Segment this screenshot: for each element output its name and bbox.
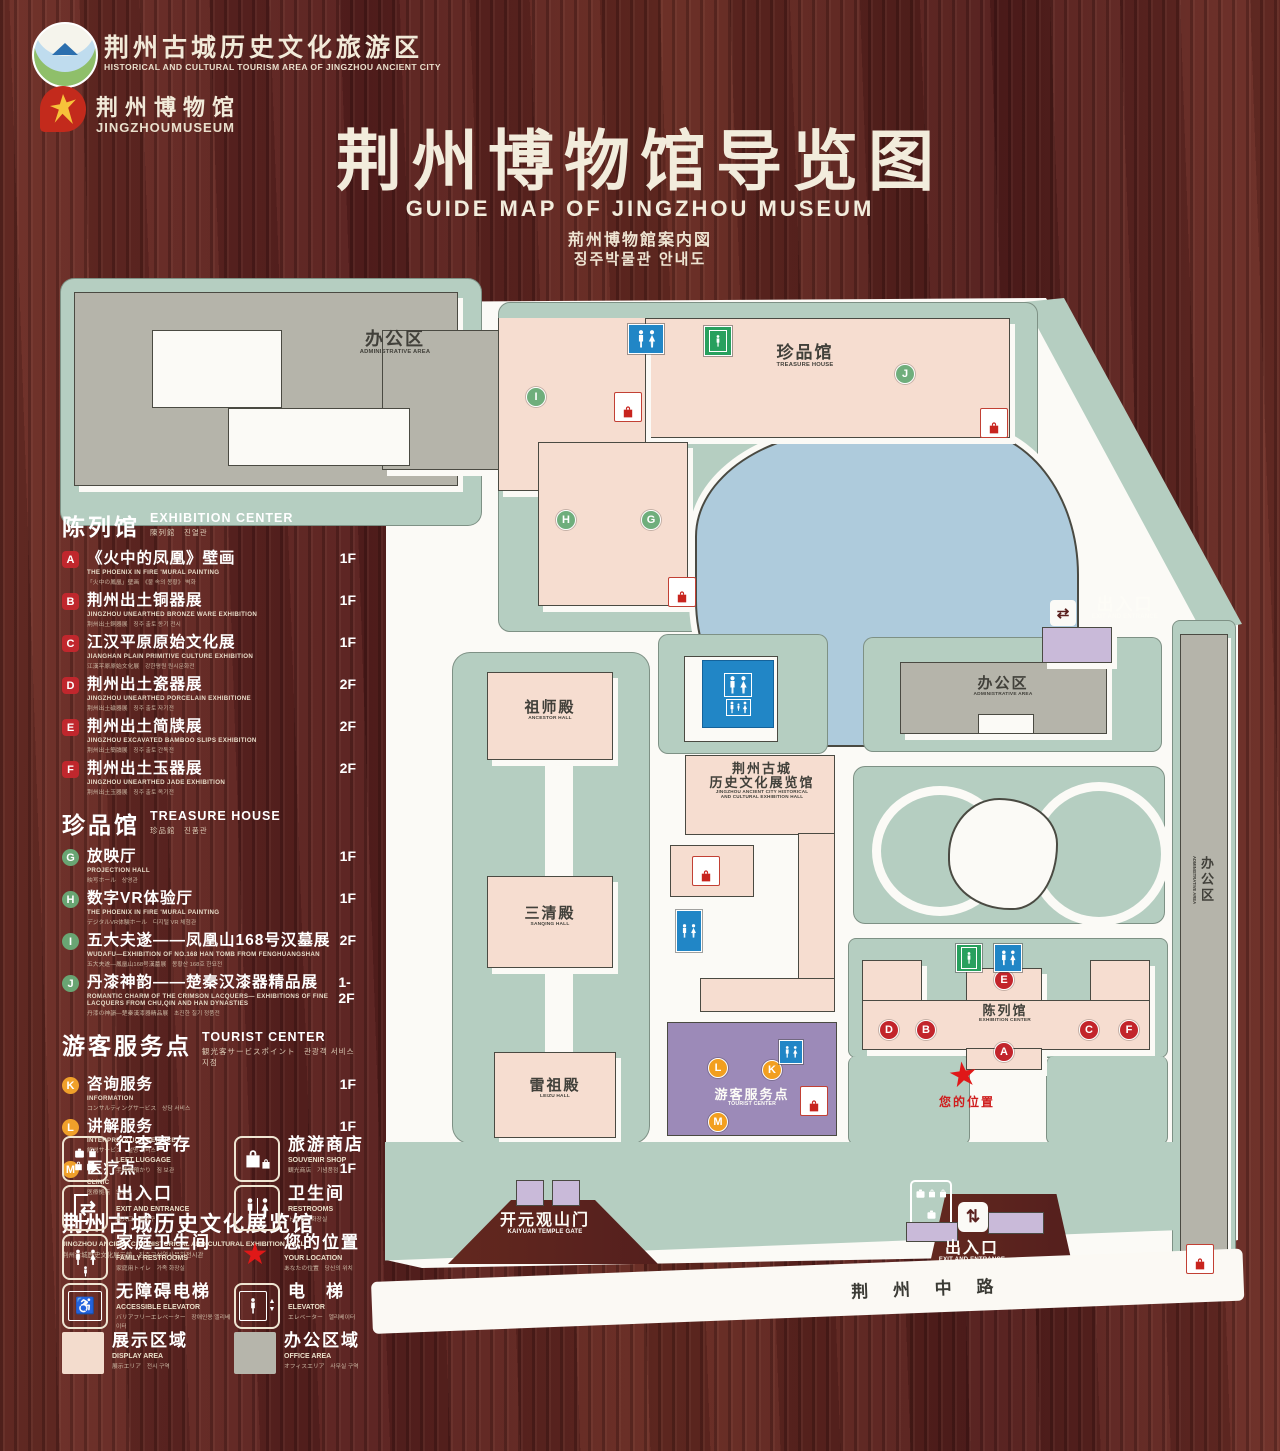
star-icon: ★ <box>234 1234 276 1276</box>
key-item-K: K 咨询服务 INFORMATION コンサルティングサービス 상담 서비스 1… <box>62 1076 356 1112</box>
legend-item-office-area: 办公区域 OFFICE AREA オフィスエリア 사무실 구역 <box>234 1332 412 1381</box>
key-item-cn: 数字VR体验厅 <box>87 890 193 907</box>
key-item-sub: 五大夫遂—鳳凰山168号漢墓展 봉황산 168호 한묘전 <box>87 959 336 968</box>
map-marker-J: J <box>895 364 915 384</box>
legend-sub: 手荷物預かり 짐 보관 <box>116 1165 192 1174</box>
building-exhibition-center-ne <box>1090 960 1150 1004</box>
legend-en: RESTROOMS <box>288 1206 345 1213</box>
key-item-J: J 丹漆神韵——楚秦汉漆器精品展 ROMANTIC CHARM OF THE C… <box>62 974 356 1017</box>
key-item-en: JINGZHOU EXCAVATED BAMBOO SLIPS EXHIBITI… <box>87 737 336 744</box>
label-tourist-center: 游客服务点 TOURIST CENTER <box>714 1088 789 1108</box>
key-item-cn: 荆州出土简牍展 <box>87 718 203 735</box>
map-marker-F: F <box>1119 1020 1139 1040</box>
map-marker-C: C <box>1079 1020 1099 1040</box>
legend-en: ELEVATOR <box>288 1304 355 1311</box>
key-badge: E <box>62 719 79 736</box>
key-badge: H <box>62 891 79 908</box>
elevator-icon <box>956 944 982 972</box>
legend-en: EXIT AND ENTRANCE <box>116 1206 189 1213</box>
legend-cn: 展示区域 <box>112 1331 188 1350</box>
key-item-sub: 映写ホール 상영관 <box>87 875 336 884</box>
key-item-en: INFORMATION <box>87 1095 336 1102</box>
map-marker-D: D <box>879 1020 899 1040</box>
label-sanqing-hall: 三清殿 SANQING HALL <box>524 906 575 927</box>
exit-entrance-icon: ⇄ <box>1050 600 1076 626</box>
key-item-cn: 荆州出土瓷器展 <box>87 676 203 693</box>
legend-item-restrooms: 卫生间 RESTROOMS トイレ 화장실 <box>234 1185 412 1234</box>
key-item-sub: 江漢平原原始文化展 강한평원 원시문화전 <box>87 661 336 670</box>
display-area-swatch <box>62 1332 104 1374</box>
key-item-floor: 1F <box>336 890 356 906</box>
key-badge: L <box>62 1119 79 1136</box>
legend-cn: 办公区域 <box>284 1331 360 1350</box>
section-title-sub: 観光客サービスポイント 관광객 서비스 지점 <box>202 1046 356 1068</box>
elevator-icon <box>704 326 732 356</box>
map-marker-I: I <box>526 387 546 407</box>
map-marker-E: E <box>994 970 1014 990</box>
label-admin-nw: 办公区 ADMINISTRATIVE AREA <box>360 330 430 356</box>
legend-sub: エレベーター 엘리베이터 <box>288 1312 355 1321</box>
gate-pillar <box>552 1180 580 1206</box>
label-exhibition-hall: 荆州古城 历史文化展览馆 JINGZHOU ANCIENT CITY HISTO… <box>682 762 842 800</box>
key-item-en: THE PHOENIX IN FIRE 'MURAL PAINTING <box>87 909 336 916</box>
key-item-H: H 数字VR体验厅 THE PHOENIX IN FIRE 'MURAL PAI… <box>62 890 356 926</box>
souvenir-shop-icon <box>692 856 720 886</box>
key-item-floor: 2F <box>336 676 356 692</box>
label-road: 荆 州 中 路 <box>851 1271 1004 1302</box>
key-item-I: I 五大夫遂——凤凰山168号汉墓展 WUDAFU—EXHIBITION OF … <box>62 932 356 968</box>
key-item-D: D 荆州出土瓷器展 JINGZHOU UNEARTHED PORCELAIN E… <box>62 676 356 712</box>
key-item-cn: 丹漆神韵——楚秦汉漆器精品展 <box>87 974 318 991</box>
key-item-floor: 1F <box>336 634 356 650</box>
legend-item-family-restrooms: 家庭卫生间 FAMILY RESTROOMS 家庭用トイレ 가족 화장실 <box>62 1234 234 1283</box>
section-title-cn: 珍品馆 <box>62 806 140 840</box>
souvenir-shop-icon <box>800 1086 828 1116</box>
section-title-en: TOURIST CENTER <box>202 1030 356 1044</box>
map-marker-B: B <box>916 1020 936 1040</box>
key-badge: B <box>62 593 79 610</box>
legend-en: LEFT LUGGAGE <box>116 1157 192 1164</box>
key-item-cn: 荆州出土铜器展 <box>87 592 203 609</box>
legend-sub: オフィスエリア 사무실 구역 <box>284 1361 360 1370</box>
icon-legend: 行李寄存 LEFT LUGGAGE 手荷物預かり 짐 보관旅游商店 SOUVEN… <box>62 1136 412 1381</box>
legend-cn: 出入口 <box>116 1184 173 1203</box>
key-item-F: F 荆州出土玉器展 JINGZHOU UNEARTHED JADE EXHIBI… <box>62 760 356 796</box>
building-exhibition-center-nw <box>862 960 922 1004</box>
key-item-en: WUDAFU—EXHIBITION OF NO.168 HAN TOMB FRO… <box>87 951 336 958</box>
legend-en: FAMILY RESTROOMS <box>116 1255 211 1262</box>
key-item-cn: 五大夫遂——凤凰山168号汉墓展 <box>87 932 330 949</box>
key-item-sub: デジタルVR体験ホール 디지털 VR 체험관 <box>87 917 336 926</box>
restroom-icon <box>234 1185 280 1231</box>
legend-sub: 出入口 출입구 <box>116 1214 189 1223</box>
courtyard-notch <box>228 408 410 466</box>
key-item-sub: 丹漆の神韻—楚秦漢漆器精品展 초진한 칠기 정품전 <box>87 1008 334 1017</box>
key-item-floor: 1F <box>336 592 356 608</box>
key-item-B: B 荆州出土铜器展 JINGZHOU UNEARTHED BRONZE WARE… <box>62 592 356 628</box>
label-leizu-hall: 雷祖殿 LEIZU HALL <box>529 1078 580 1099</box>
courtyard-path <box>545 758 573 878</box>
label-treasure-house: 珍品馆 TREASURE HOUSE <box>777 344 834 369</box>
legend-sub: バリアフリーエレベーター 장애인용 엘리베이터 <box>116 1312 234 1330</box>
family-icon <box>62 1234 108 1280</box>
key-item-floor: 2F <box>336 760 356 776</box>
legend-cn: 旅游商店 <box>288 1135 364 1154</box>
key-item-en: JINGZHOU UNEARTHED JADE EXHIBITION <box>87 779 336 786</box>
key-item-floor: 1F <box>336 550 356 566</box>
label-admin-east: 办公区 ADMINISTRATIVE AREA <box>974 676 1033 697</box>
key-item-C: C 江汉平原原始文化展 JIANGHAN PLAIN PRIMITIVE CUL… <box>62 634 356 670</box>
key-badge: I <box>62 933 79 950</box>
building-gatehouse-ne <box>1042 627 1112 663</box>
building-gatehouse-s <box>988 1212 1044 1234</box>
label-ancestor-hall: 祖师殿 ANCESTOR HALL <box>524 700 575 721</box>
key-item-floor: 2F <box>336 932 356 948</box>
section-title-cn: 陈列馆 <box>62 508 140 542</box>
key-badge: C <box>62 635 79 652</box>
section-heading: 游客服务点 TOURIST CENTER 観光客サービスポイント 관광객 서비스… <box>62 1027 356 1068</box>
zone-exhibition-center-se <box>1046 1056 1168 1145</box>
key-badge: A <box>62 551 79 568</box>
key-item-G: G 放映厅 PROJECTION HALL 映写ホール 상영관 1F <box>62 848 356 884</box>
key-item-A: A 《火中的凤凰》壁画 THE PHOENIX IN FIRE 'MURAL P… <box>62 550 356 586</box>
building-gatehouse-s <box>906 1222 958 1242</box>
legend-item-your-location: ★您的位置 YOUR LOCATION あなたの位置 당신의 위치 <box>234 1234 412 1283</box>
key-item-E: E 荆州出土简牍展 JINGZHOU EXCAVATED BAMBOO SLIP… <box>62 718 356 754</box>
section-heading: 陈列馆 EXHIBITION CENTER 陳列館 진열관 <box>62 508 356 542</box>
souvenir-shop-icon <box>980 408 1008 438</box>
legend-cn: 您的位置 <box>284 1233 360 1252</box>
your-location-star-icon: ★ <box>946 1056 981 1094</box>
key-item-sub: 荆州出土簡牘展 징주 출토 간독전 <box>87 745 336 754</box>
legend-en: YOUR LOCATION <box>284 1255 360 1262</box>
key-item-floor: 2F <box>336 718 356 734</box>
section-title-sub: 珍品館 진품관 <box>150 825 281 836</box>
key-item-floor: 1F <box>336 1076 356 1092</box>
key-badge: K <box>62 1077 79 1094</box>
legend-item-accessible-elevator: ♿无障碍电梯 ACCESSIBLE ELEVATOR バリアフリーエレベーター … <box>62 1283 234 1332</box>
souvenir-shop-icon <box>1186 1244 1214 1274</box>
key-item-sub: 「火中の鳳凰」壁画 《불 속의 봉황》 벽화 <box>87 577 336 586</box>
restroom-icon <box>724 673 752 697</box>
key-item-sub: 荆州出土磁器展 징주 출토 자기전 <box>87 703 336 712</box>
souvenir-shop-icon <box>614 392 642 422</box>
legend-item-display-area: 展示区域 DISPLAY AREA 展示エリア 전시 구역 <box>62 1332 234 1381</box>
courtyard-path <box>545 966 573 1054</box>
key-badge: F <box>62 761 79 778</box>
key-item-en: JIANGHAN PLAIN PRIMITIVE CULTURE EXHIBIT… <box>87 653 336 660</box>
legend-en: ACCESSIBLE ELEVATOR <box>116 1304 234 1311</box>
courtyard-notch <box>152 330 282 408</box>
restroom-icon <box>779 1040 803 1064</box>
key-item-cn: 江汉平原原始文化展 <box>87 634 236 651</box>
restroom-icon <box>676 910 702 952</box>
legend-sub: 観光商店 기념품점 <box>288 1165 364 1174</box>
exit-icon: ⇄ <box>62 1185 108 1231</box>
legend-sub: あなたの位置 당신의 위치 <box>284 1263 360 1272</box>
key-item-en: THE PHOENIX IN FIRE 'MURAL PAINTING <box>87 569 336 576</box>
office-area-swatch <box>234 1332 276 1374</box>
legend-cn: 行李寄存 <box>116 1135 192 1154</box>
building-admin-strip <box>1180 634 1228 1252</box>
key-item-floor: 1-2F <box>334 974 356 1006</box>
key-item-en: JINGZHOU UNEARTHED BRONZE WARE EXHIBITIO… <box>87 611 336 618</box>
legend-sub: 展示エリア 전시 구역 <box>112 1361 188 1370</box>
left-luggage-icon <box>910 1180 952 1228</box>
key-item-sub: 荆州出土玉器展 징주 출토 옥기전 <box>87 787 336 796</box>
key-item-cn: 荆州出土玉器展 <box>87 760 203 777</box>
key-item-cn: 《火中的凤凰》壁画 <box>87 550 236 567</box>
restroom-sign-large <box>702 660 774 728</box>
restroom-icon <box>628 324 664 354</box>
section-title-en: EXHIBITION CENTER <box>150 511 293 525</box>
legend-sub: トイレ 화장실 <box>288 1214 345 1223</box>
family-restroom-icon <box>726 699 751 716</box>
section-title-sub: 陳列館 진열관 <box>150 527 293 538</box>
key-badge: D <box>62 677 79 694</box>
key-badge: G <box>62 849 79 866</box>
legend-cn: 家庭卫生间 <box>116 1233 211 1252</box>
label-exhibition-center: 陈列馆 EXHIBITION CENTER <box>979 1004 1031 1023</box>
key-badge: J <box>62 975 79 992</box>
gate-pillar <box>516 1180 544 1206</box>
key-item-cn: 咨询服务 <box>87 1076 153 1093</box>
key-item-floor: 1F <box>336 1118 356 1134</box>
courtyard-notch <box>978 714 1034 734</box>
map-marker-M: M <box>708 1112 728 1132</box>
key-item-floor: 1F <box>336 848 356 864</box>
label-your-location: 您的位置 <box>939 1096 995 1109</box>
label-gate: 开元观山门 KAIYUAN TEMPLE GATE <box>500 1212 590 1236</box>
legend-cn: 卫生间 <box>288 1184 345 1203</box>
legend-en: OFFICE AREA <box>284 1353 360 1360</box>
key-item-cn: 放映厅 <box>87 848 137 865</box>
map-marker-L: L <box>708 1058 728 1078</box>
section-title-en: TREASURE HOUSE <box>150 809 281 823</box>
exit-entrance-icon: ⇅ <box>958 1202 988 1232</box>
legend-en: DISPLAY AREA <box>112 1353 188 1360</box>
label-admin-strip: 办公区 ADMINISTRATIVE AREA <box>1192 856 1216 904</box>
map-marker-A: A <box>994 1042 1014 1062</box>
section-title-cn: 游客服务点 <box>62 1027 192 1061</box>
section-heading: 珍品馆 TREASURE HOUSE 珍品館 진품관 <box>62 806 356 840</box>
legend-en: SOUVENIR SHOP <box>288 1157 364 1164</box>
key-item-en: JINGZHOU UNEARTHED PORCELAIN EXHIBITIONE <box>87 695 336 702</box>
map-marker-G: G <box>641 510 661 530</box>
label-exit-top: 出入口 EXIT AND ENTRANCE <box>1092 596 1158 621</box>
building-tourist-center <box>667 1022 837 1136</box>
wheelchair-icon: ♿ <box>62 1283 108 1329</box>
key-item-sub: 荆州出土銅器展 징주 출토 동기 전시 <box>87 619 336 628</box>
legend-sub: 家庭用トイレ 가족 화장실 <box>116 1263 211 1272</box>
legend-item-souvenir-shop: 旅游商店 SOUVENIR SHOP 観光商店 기념품점 <box>234 1136 412 1185</box>
key-item-cn: 讲解服务 <box>87 1118 153 1135</box>
souvenir-shop-icon <box>668 577 696 607</box>
map-marker-H: H <box>556 510 576 530</box>
key-item-en: PROJECTION HALL <box>87 867 336 874</box>
key-item-sub: コンサルティングサービス 상담 서비스 <box>87 1103 336 1112</box>
legend-cn: 电 梯 <box>288 1282 345 1301</box>
souvenir-icon <box>234 1136 280 1182</box>
legend-cn: 无障碍电梯 <box>116 1282 211 1301</box>
legend-item-left-luggage: 行李寄存 LEFT LUGGAGE 手荷物預かり 짐 보관 <box>62 1136 234 1185</box>
key-item-en: ROMANTIC CHARM OF THE CRIMSON LACQUERS— … <box>87 993 334 1007</box>
elevator-icon: ▲▼ <box>234 1283 280 1329</box>
garden-pond <box>948 798 1058 910</box>
legend-item-exit-and-entrance: ⇄出入口 EXIT AND ENTRANCE 出入口 출입구 <box>62 1185 234 1234</box>
legend-item-elevator: ▲▼电 梯 ELEVATOR エレベーター 엘리베이터 <box>234 1283 412 1332</box>
building-exhibition-hall-south <box>700 978 835 1012</box>
restroom-icon <box>994 944 1022 972</box>
luggage-icon <box>62 1136 108 1182</box>
